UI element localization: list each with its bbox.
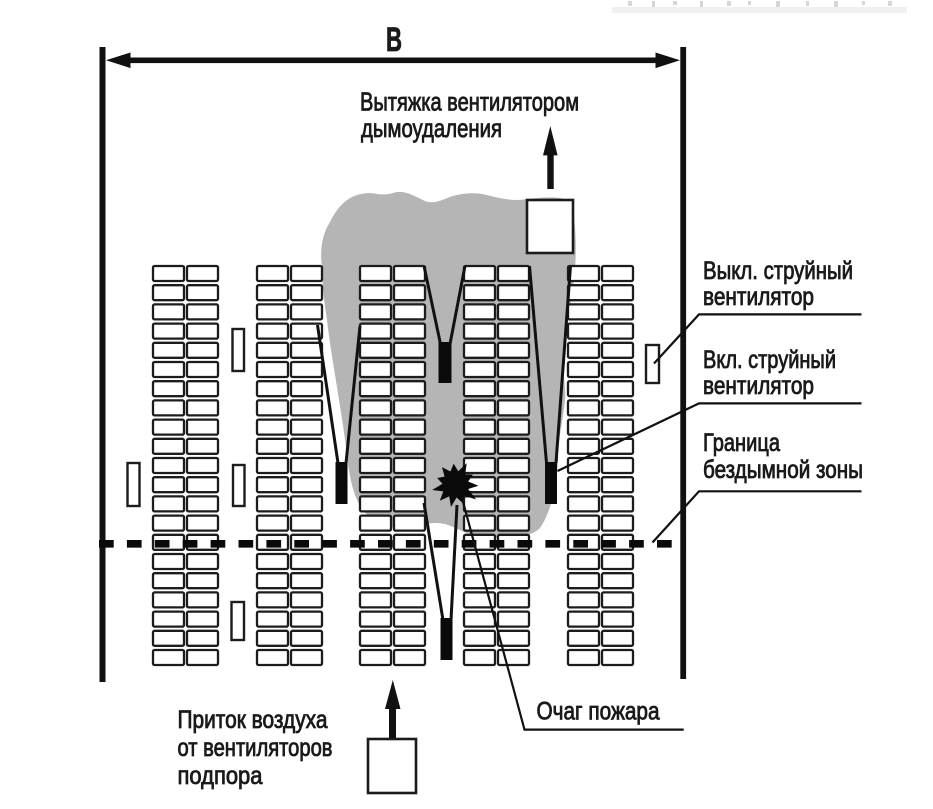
svg-text:дымоудаления: дымоудаления [361,113,502,143]
svg-text:бездымной зоны: бездымной зоны [703,456,863,484]
svg-text:Граница: Граница [703,429,780,457]
svg-text:В: В [386,21,402,59]
svg-text:от вентиляторов: от вентиляторов [178,734,333,762]
svg-text:Очаг пожара: Очаг пожара [537,698,660,726]
svg-text:подпора: подпора [178,762,263,790]
svg-text:Вытяжка вентилятором: Вытяжка вентилятором [360,87,579,117]
svg-text:Выкл. струйный: Выкл. струйный [703,257,853,285]
svg-text:Вкл. струйный: Вкл. струйный [703,346,836,374]
svg-text:вентилятор: вентилятор [703,283,814,311]
svg-text:Приток воздуха: Приток воздуха [178,706,328,734]
svg-text:вентилятор: вентилятор [703,372,814,400]
